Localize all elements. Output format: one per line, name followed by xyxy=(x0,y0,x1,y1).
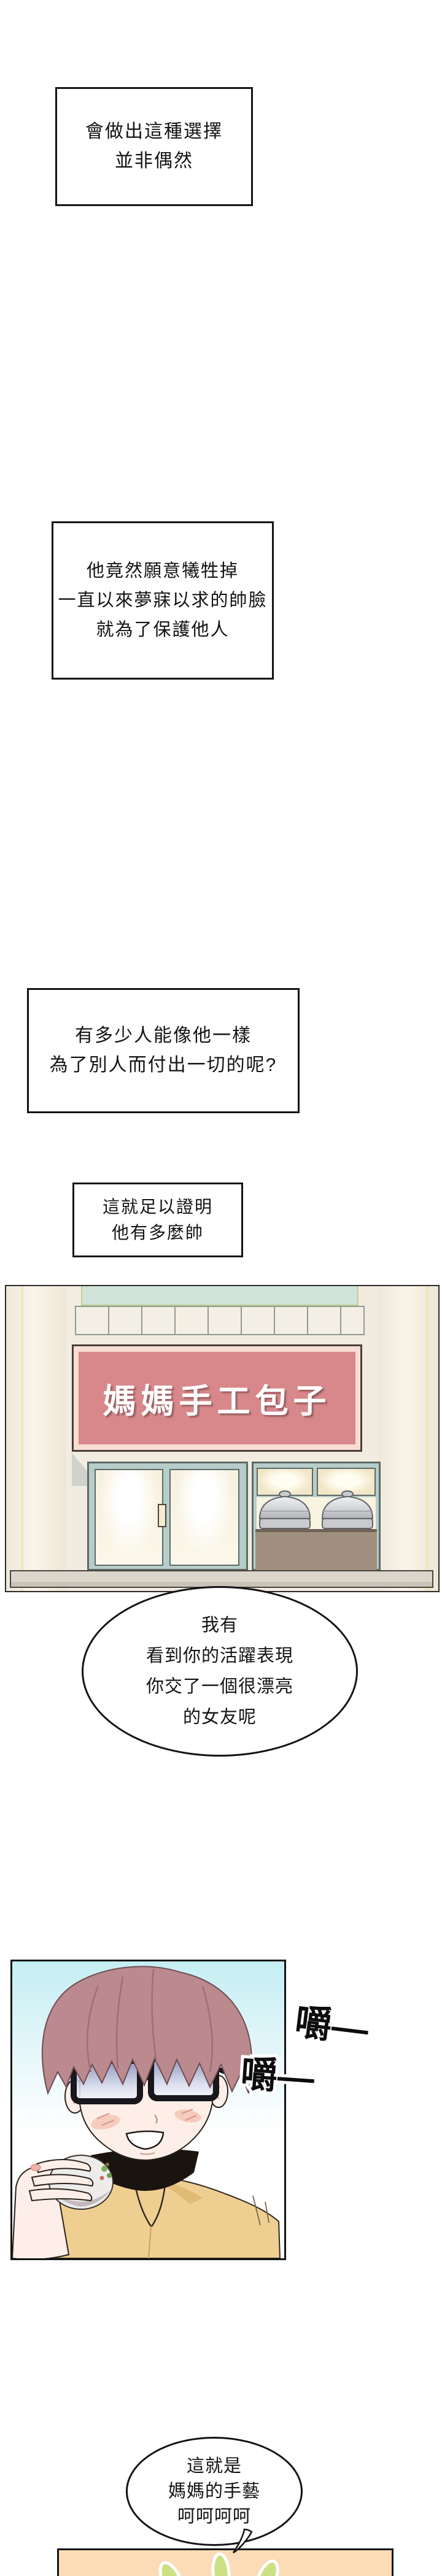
narration-line: 會做出這種選擇 xyxy=(85,117,223,147)
leaf xyxy=(211,2553,230,2576)
shop-doors xyxy=(87,1462,248,1571)
thumb-nail xyxy=(31,2164,41,2171)
pilaster-left xyxy=(6,1286,66,1591)
narration-line: 他有多麼帥 xyxy=(112,1220,204,1246)
narration-line: 為了別人而付出一切的呢? xyxy=(50,1051,277,1080)
narration-line: 並非偶然 xyxy=(115,147,193,176)
narration-line: 就為了保護他人 xyxy=(96,615,229,645)
speech-bubble-2: 這就是 媽媽的手藝 呵呵呵呵 xyxy=(126,2437,303,2546)
bubble-tail xyxy=(232,2528,257,2555)
bun-filling xyxy=(106,2163,109,2166)
bun-filling xyxy=(100,2176,104,2180)
narration-line: 他竟然願意犧牲掉 xyxy=(87,556,239,586)
narration-line: 有多少人能像他一樣 xyxy=(75,1021,252,1051)
bubble-line: 看到你的活躍表現 xyxy=(146,1641,293,1671)
narration-box-1: 會做出這種選擇 並非偶然 xyxy=(55,87,253,206)
narration-box-3: 有多少人能像他一樣 為了別人而付出一切的呢? xyxy=(27,988,300,1113)
bubble-line: 這就是 xyxy=(187,2454,242,2479)
svg-text:嚼—: 嚼— xyxy=(239,2053,316,2099)
storefront-sill xyxy=(10,1570,433,1588)
narration-box-4: 這就足以證明 他有多麼帥 xyxy=(72,1183,243,1257)
bottom-panel xyxy=(57,2548,394,2576)
speech-bubble-1: 我有 看到你的活躍表現 你交了一個很漂亮 的女友呢 xyxy=(82,1586,358,1757)
bubble-line: 我有 xyxy=(201,1610,238,1641)
bun-filling xyxy=(101,2166,107,2172)
sfx-chew-2: 嚼— xyxy=(232,2044,336,2111)
pilaster-right xyxy=(378,1286,438,1591)
sprout-leaves xyxy=(59,2550,392,2576)
awning-beam xyxy=(75,1306,365,1335)
narration-line: 一直以來夢寐以求的帥臉 xyxy=(58,586,267,615)
storefront-panel: 媽媽手工包子 xyxy=(5,1285,440,1592)
door-glass-right xyxy=(169,1469,239,1566)
comic-page: 會做出這種選擇 並非偶然 他竟然願意犧牲掉 一直以來夢寐以求的帥臉 就為了保護他… xyxy=(0,0,442,2576)
shop-sign-board: 媽媽手工包子 xyxy=(79,1352,355,1444)
shop-sign: 媽媽手工包子 xyxy=(72,1344,362,1452)
bun-filling xyxy=(107,2173,112,2178)
facade-accent xyxy=(21,1286,23,1591)
door-handle xyxy=(158,1504,166,1527)
bubble-line: 呵呵呵呵 xyxy=(177,2504,251,2529)
shop-sign-text: 媽媽手工包子 xyxy=(103,1374,331,1422)
steamer-left xyxy=(260,1491,310,1528)
bubble-line: 你交了一個很漂亮 xyxy=(146,1671,293,1702)
leaf xyxy=(252,2558,282,2576)
transom-window xyxy=(81,1286,359,1306)
bubble-line: 的女友呢 xyxy=(183,1702,257,1733)
steamer-right xyxy=(322,1491,373,1528)
narration-box-2: 他竟然願意犧牲掉 一直以來夢寐以求的帥臉 就為了保護他人 xyxy=(52,521,274,680)
narration-line: 這就足以證明 xyxy=(103,1194,213,1220)
shop-window xyxy=(252,1462,381,1571)
leaf xyxy=(156,2559,187,2576)
facade-accent xyxy=(426,1286,428,1591)
steamer-pots xyxy=(256,1487,376,1535)
steamer-counter xyxy=(255,1529,377,1572)
bubble-line: 媽媽的手藝 xyxy=(168,2479,260,2504)
door-glass-left xyxy=(95,1469,163,1566)
